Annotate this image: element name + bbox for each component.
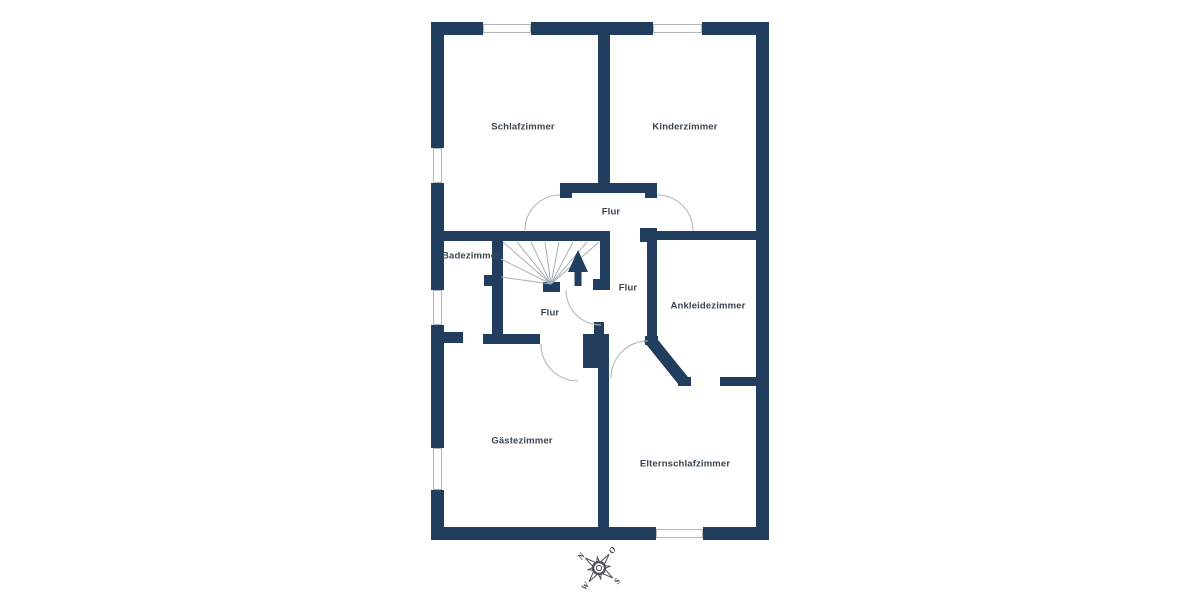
room-label-flur-unten: Flur [541, 308, 560, 319]
room-label-badezimmer: Badezimmer [442, 251, 500, 262]
chimney-nub [594, 322, 604, 334]
stairs-direction-arrow [568, 250, 588, 286]
compass-letter-o: O [606, 545, 618, 556]
window-schlafzimmer-top [483, 22, 531, 35]
room-label-schlafzimmer: Schlafzimmer [491, 122, 555, 133]
room-label-gaestezimmer: Gästezimmer [491, 436, 552, 447]
compass-letter-s: S [612, 576, 623, 586]
staircase [501, 242, 599, 286]
window-badezimmer-left [431, 290, 444, 325]
room-label-flur-oben: Flur [602, 207, 621, 218]
room-label-flur-mitte: Flur [619, 283, 638, 294]
door-swing-schlafzimmer [525, 195, 560, 230]
door-swing-gaestezimmer [541, 344, 578, 381]
room-label-elternschlafzimmer: Elternschlafzimmer [640, 459, 730, 470]
floorplan-drawing: N O S W [0, 0, 1200, 600]
window-kinderzimmer-top [653, 22, 702, 35]
window-gaestezimmer-left [431, 448, 444, 490]
diagonal-wall [652, 342, 681, 378]
door-swing-treppe [566, 290, 601, 325]
floorplan-canvas: N O S W Schlafzimmer Kinderzimmer Flur B… [0, 0, 1200, 600]
window-elternschlafzimmer-bottom [656, 527, 703, 540]
compass-rose: N O S W [575, 544, 623, 592]
window-schlafzimmer-left [431, 148, 444, 183]
room-label-ankleidezimmer: Ankleidezimmer [671, 301, 746, 312]
door-swing-kinderzimmer [657, 195, 693, 231]
interior-walls [431, 35, 756, 527]
compass-letter-n: N [575, 550, 588, 562]
room-label-kinderzimmer: Kinderzimmer [652, 122, 717, 133]
door-swing-elternschlafzimmer [611, 341, 648, 378]
